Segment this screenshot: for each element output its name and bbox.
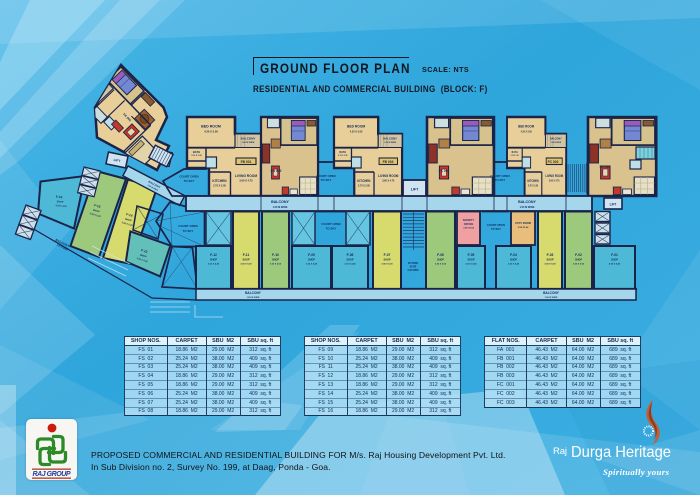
svg-text:3.03 X 4.45: 3.03 X 4.45: [344, 263, 356, 266]
svg-text:SHOP: SHOP: [272, 259, 279, 262]
svg-text:FC 001: FC 001: [439, 169, 450, 173]
svg-text:LIFT: LIFT: [610, 203, 617, 207]
svg-text:COURT OPEN: COURT OPEN: [179, 175, 198, 179]
svg-text:SOCIETY: SOCIETY: [463, 218, 475, 222]
svg-text:TO SKY: TO SKY: [495, 178, 506, 182]
svg-text:SHOP: SHOP: [437, 259, 444, 262]
svg-text:F-10: F-10: [272, 253, 279, 257]
svg-text:Spiritually yours: Spiritually yours: [603, 467, 670, 477]
svg-text:SHOP: SHOP: [242, 259, 249, 262]
svg-text:TO SKY: TO SKY: [184, 179, 195, 183]
svg-text:SHOP: SHOP: [611, 259, 618, 262]
svg-text:FB 002: FB 002: [271, 169, 282, 173]
svg-text:BALCONY: BALCONY: [271, 200, 289, 204]
svg-text:TO SKY: TO SKY: [321, 178, 332, 182]
svg-text:SHOP: SHOP: [383, 259, 390, 262]
svg-text:CCTV ROOM: CCTV ROOM: [515, 221, 531, 225]
svg-text:BALCONY: BALCONY: [543, 291, 560, 295]
svg-text:FC 002: FC 002: [548, 160, 559, 164]
svg-text:TO SKY: TO SKY: [326, 227, 337, 231]
svg-text:3.00 X 6.00: 3.00 X 6.00: [381, 264, 393, 266]
svg-text:SHOP: SHOP: [467, 259, 474, 262]
svg-text:3.00 X 6.00: 3.00 X 6.00: [270, 264, 282, 266]
svg-text:3.00 X 6.00: 3.00 X 6.00: [435, 264, 447, 266]
svg-text:COURT OPEN: COURT OPEN: [178, 224, 197, 228]
svg-text:3.00 X 6.00: 3.00 X 6.00: [240, 264, 252, 266]
svg-text:3.58 X3.64: 3.58 X3.64: [518, 226, 529, 229]
svg-text:BALCONY: BALCONY: [245, 291, 262, 295]
svg-text:F-11: F-11: [243, 253, 250, 257]
svg-text:F-02: F-02: [575, 253, 582, 257]
svg-text:3.03 X 4.45: 3.03 X 4.45: [465, 263, 477, 266]
svg-text:SHOP: SHOP: [308, 259, 315, 262]
svg-text:1.50 M WIDE: 1.50 M WIDE: [520, 206, 535, 209]
svg-text:3.00 X 6.00: 3.00 X 6.00: [573, 264, 585, 266]
svg-text:3.00 X 6.00: 3.00 X 6.00: [544, 264, 556, 266]
svg-text:SHOP: SHOP: [57, 200, 64, 204]
svg-text:F-06: F-06: [437, 253, 444, 257]
svg-text:F-12: F-12: [210, 253, 217, 257]
svg-text:F-16: F-16: [56, 195, 63, 200]
svg-text:F-07: F-07: [384, 253, 391, 257]
svg-text:4.00 X 4.45: 4.00 X 4.45: [609, 263, 621, 266]
svg-text:SHOP: SHOP: [210, 259, 217, 262]
svg-text:STAIR: STAIR: [410, 266, 417, 269]
svg-text:3.03 X 4.45: 3.03 X 4.45: [508, 263, 520, 266]
svg-text:FB 001: FB 001: [241, 160, 252, 164]
svg-text:OUTSIDE: OUTSIDE: [408, 263, 419, 265]
svg-text:TO SKY: TO SKY: [491, 227, 501, 231]
svg-text:F-05: F-05: [468, 253, 475, 257]
svg-text:RAJ GROUP: RAJ GROUP: [33, 471, 71, 478]
svg-text:SHOP: SHOP: [510, 259, 517, 262]
svg-text:COURT OPEN: COURT OPEN: [487, 223, 505, 227]
svg-text:COURT OPEN: COURT OPEN: [321, 222, 340, 226]
svg-text:3.03 X 4.45: 3.03 X 4.45: [306, 263, 318, 266]
svg-text:FB 003: FB 003: [383, 160, 394, 164]
svg-text:3.58 X3.64: 3.58 X3.64: [463, 227, 474, 230]
svg-text:LIFT: LIFT: [411, 188, 419, 192]
svg-text:SHOP: SHOP: [546, 259, 553, 262]
svg-text:SHOP: SHOP: [346, 259, 353, 262]
svg-text:Raj: Raj: [553, 446, 567, 457]
svg-text:1.50 M WIDE: 1.50 M WIDE: [544, 297, 558, 299]
svg-text:2.00 WIDE: 2.00 WIDE: [407, 270, 419, 272]
svg-text:1.50 M WIDE: 1.50 M WIDE: [273, 206, 288, 209]
svg-text:F-08: F-08: [347, 253, 354, 257]
svg-text:F-09: F-09: [308, 253, 315, 257]
svg-text:F-01: F-01: [611, 253, 618, 257]
svg-text:TO SKY: TO SKY: [183, 229, 194, 233]
svg-text:F-03: F-03: [547, 253, 554, 257]
svg-text:Durga Heritage: Durga Heritage: [571, 444, 671, 461]
svg-text:FC 003: FC 003: [600, 165, 611, 169]
svg-text:3.03 X 4.45: 3.03 X 4.45: [208, 263, 220, 266]
svg-text:SHOP: SHOP: [575, 259, 582, 262]
svg-text:BALCONY: BALCONY: [518, 200, 536, 204]
svg-text:OFFICE: OFFICE: [464, 222, 474, 226]
svg-text:F-04: F-04: [510, 253, 517, 257]
svg-text:1.50 M WIDE: 1.50 M WIDE: [246, 297, 260, 299]
